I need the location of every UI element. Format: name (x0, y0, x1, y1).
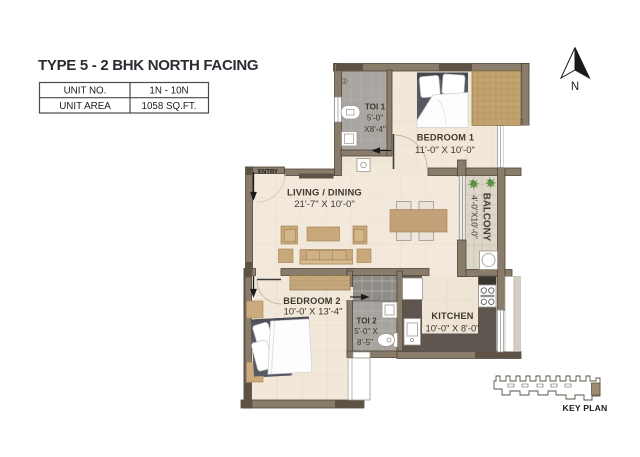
svg-text:TOI 1: TOI 1 (365, 103, 386, 112)
svg-text:BALCONY: BALCONY (481, 193, 492, 242)
svg-text:5'-0" X: 5'-0" X (354, 327, 378, 336)
svg-text:10'-0' X 13'-4": 10'-0' X 13'-4" (283, 307, 342, 318)
svg-text:4'-0"X10'-0": 4'-0"X10'-0" (470, 195, 480, 239)
svg-text:N: N (571, 81, 579, 93)
svg-text:X8'-4": X8'-4" (364, 125, 386, 134)
svg-text:ENTRY: ENTRY (258, 170, 278, 176)
svg-text:11'-0" X 10'-0": 11'-0" X 10'-0" (415, 145, 475, 156)
svg-text:BEDROOM 1: BEDROOM 1 (417, 133, 474, 143)
svg-text:UNIT NO.: UNIT NO. (64, 86, 107, 97)
svg-text:UNIT AREA: UNIT AREA (59, 101, 111, 112)
svg-text:KITCHEN: KITCHEN (431, 311, 473, 321)
svg-text:KEY PLAN: KEY PLAN (563, 403, 608, 413)
svg-text:1058 SQ.FT.: 1058 SQ.FT. (142, 101, 197, 112)
svg-text:8'-5": 8'-5" (357, 338, 373, 347)
svg-text:TYPE 5 - 2 BHK NORTH FACING: TYPE 5 - 2 BHK NORTH FACING (38, 57, 258, 74)
svg-text:TOI 2: TOI 2 (356, 317, 377, 326)
svg-text:1N - 10N: 1N - 10N (149, 86, 188, 97)
svg-text:10'-0" X 8'-0": 10'-0" X 8'-0" (425, 323, 479, 334)
svg-text:5'-0": 5'-0" (367, 114, 383, 123)
svg-text:21'-7" X 10'-0": 21'-7" X 10'-0" (294, 199, 355, 210)
svg-text:LIVING / DINING: LIVING / DINING (287, 187, 362, 198)
svg-text:BEDROOM 2: BEDROOM 2 (283, 296, 340, 306)
